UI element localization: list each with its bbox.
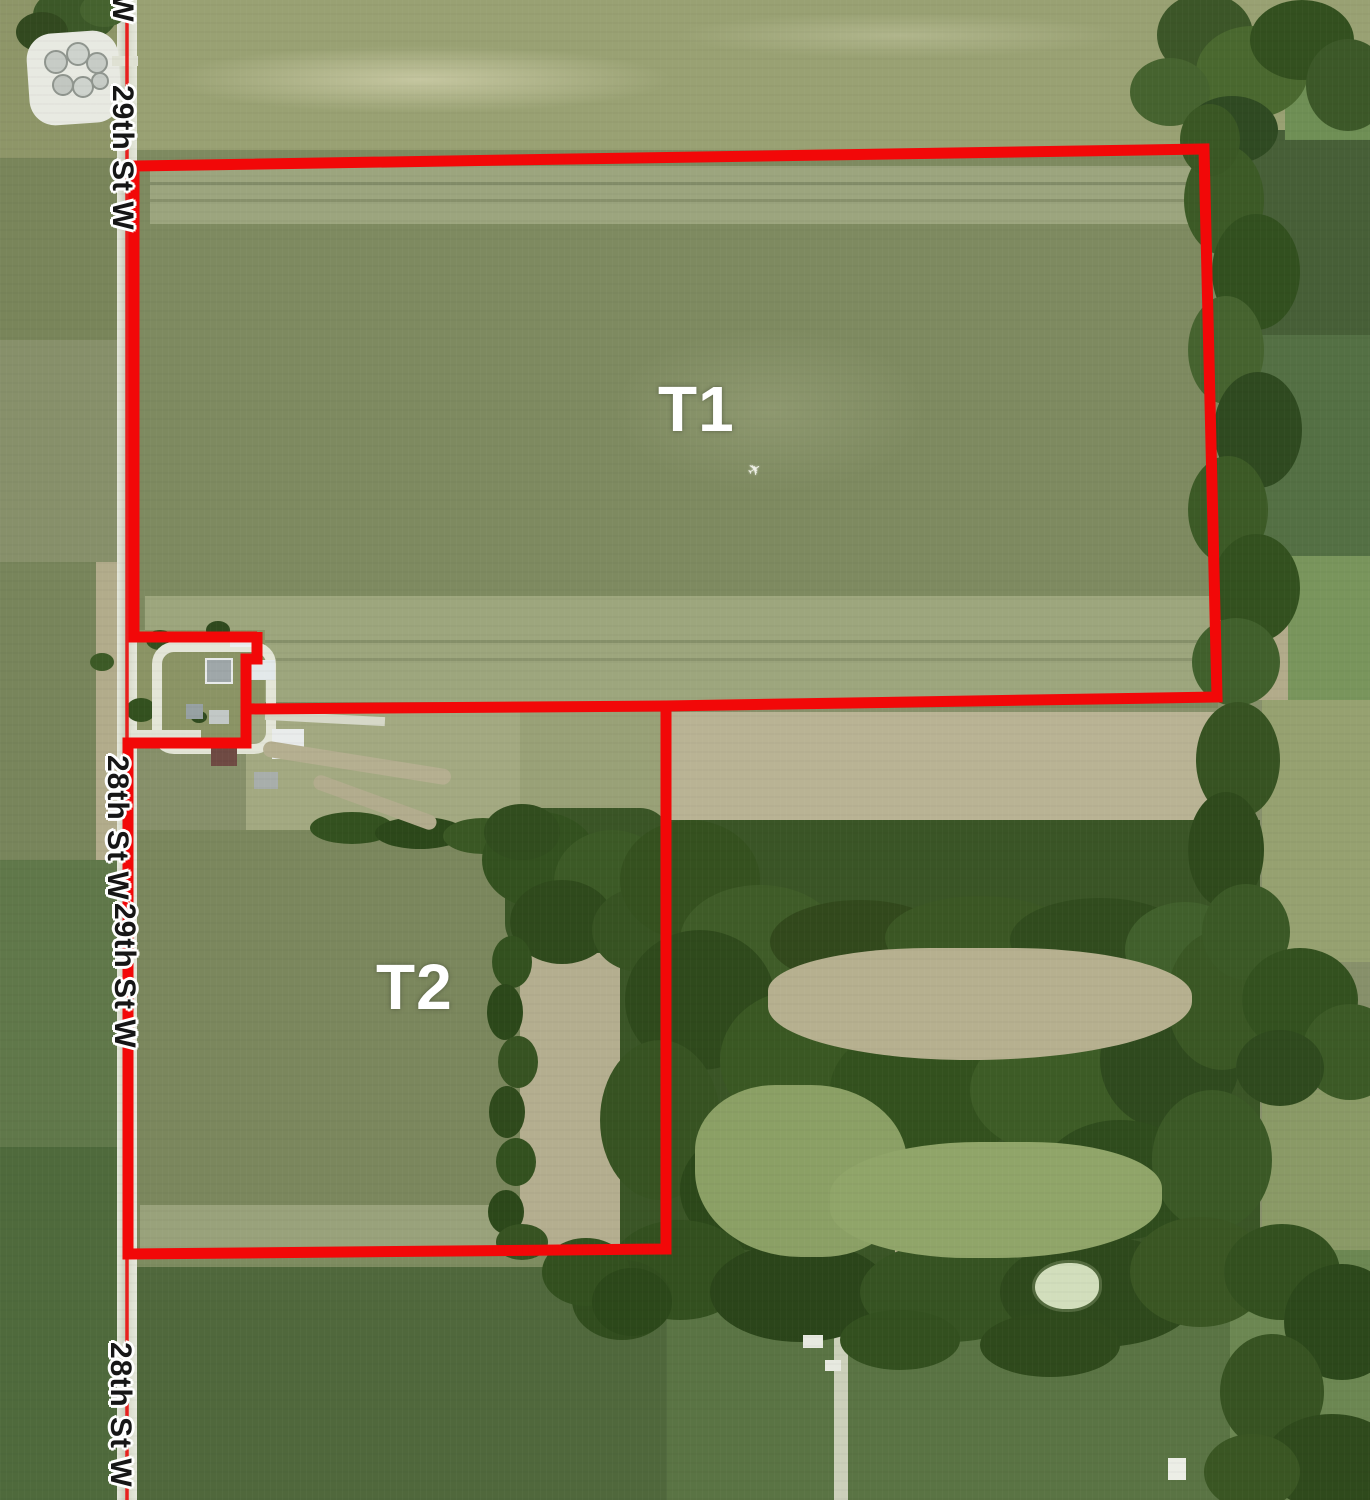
tract-label-t1: T1 (658, 372, 735, 446)
road-label-st-w-top: St W (105, 0, 139, 23)
road-label-29th-upper: 29th St W (105, 85, 139, 231)
labels: St W 29th St W 28th St W 29th St W 28th … (0, 0, 1370, 1500)
road-label-28th-bottom: 28th St W (103, 1342, 137, 1488)
tract-label-t2: T2 (376, 950, 453, 1024)
road-label-28th-middle: 28th St W (100, 755, 134, 901)
aerial-map: ✈ St W 29th St W 28th St W 29th St W 28t… (0, 0, 1370, 1500)
road-label-29th-middle: 29th St W (107, 903, 141, 1049)
